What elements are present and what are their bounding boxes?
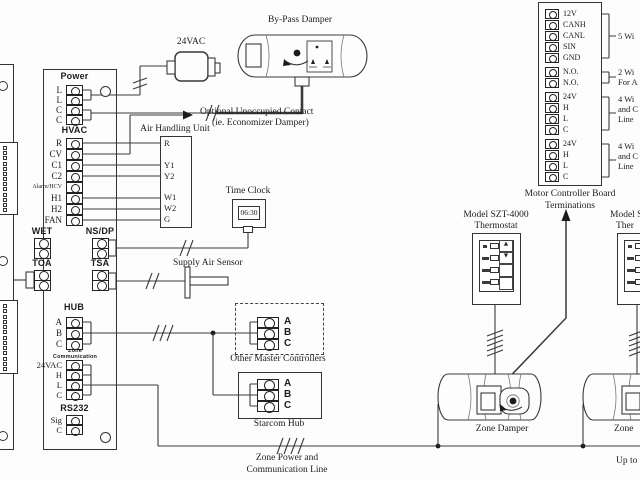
terminal-zone_comm-2	[66, 380, 83, 390]
thermostat1-cell4	[499, 277, 513, 290]
bypass-damper-label: By-Pass Damper	[250, 15, 350, 26]
supply-air-sensor-label: Supply Air Sensor	[173, 258, 243, 269]
terminal-hvac-1	[66, 149, 83, 160]
thermostat2-glyph4	[627, 281, 635, 284]
edge-connector-pin	[3, 177, 7, 181]
terminal-label-zone_comm-0: 24VAC	[12, 360, 62, 370]
edge-connector-pin	[3, 172, 7, 176]
terminal-other_masters-2	[257, 339, 279, 350]
thermostat2-body: ▲ ▼	[617, 233, 640, 305]
terminal-power-2	[66, 105, 83, 115]
terminal-other_masters-1	[257, 328, 279, 339]
starcom-label: Starcom Hub	[229, 419, 329, 430]
mcb-terminal-g0-1-dot	[549, 22, 557, 30]
thermostat1-tab4	[490, 279, 499, 285]
edge-connector-pin	[3, 357, 7, 361]
terminal-block4-1-dot	[39, 281, 49, 291]
terminal-rs232-0	[66, 415, 83, 425]
edge-connector-pin	[3, 187, 7, 191]
terminal-label-zone_comm-2: L	[12, 380, 62, 390]
terminal-label-starcom-2: C	[284, 401, 324, 411]
ahu-terminal-4: W2	[164, 203, 204, 213]
terminal-hub-2	[66, 339, 83, 350]
edge-connector-pin	[3, 193, 7, 197]
terminal-hub-0-dot	[71, 319, 80, 328]
hub-title: HUB	[54, 302, 94, 312]
mcb-terminal-g3-0	[545, 139, 559, 149]
terminal-zone_comm-1	[66, 370, 83, 380]
bypass-damper-stem	[295, 77, 309, 86]
mcb-terminal-g2-2-dot	[549, 116, 557, 124]
terminal-hvac-0-dot	[71, 140, 80, 149]
thermostat2-glyph1	[628, 245, 632, 248]
sensor-probe-stem	[190, 277, 228, 285]
thermostat2-glyph2	[627, 257, 634, 260]
terminal-block4-1	[34, 280, 51, 291]
terminal-label-hub-1: B	[12, 328, 62, 338]
terminal-hvac-1-dot	[71, 151, 80, 160]
time-clock-time: 06:30	[239, 208, 259, 217]
terminal-label-hvac-0: R	[12, 138, 62, 148]
ahu-label: Air Handling Unit	[130, 124, 220, 135]
edge-connector-pin	[3, 325, 7, 329]
mcb-terminal-g1-0-dot	[549, 69, 557, 77]
mcb-terminal-label-g3-2: L	[563, 161, 603, 171]
transformer-right-lug2	[215, 63, 220, 73]
mcb-terminal-g2-0-dot	[549, 94, 557, 102]
tick-marks-hub-wire	[153, 325, 173, 341]
terminal-block3-1	[92, 248, 109, 259]
terminal-label-power-0: L	[12, 85, 62, 95]
arrowhead-optional-contact	[183, 111, 193, 120]
time-clock-display: 06:30	[238, 206, 260, 220]
edge-connector-pin	[3, 156, 7, 160]
mcb-terminal-label-g0-1: CANH	[563, 20, 603, 30]
mcb-terminal-g2-3-dot	[549, 127, 557, 135]
mcb-note-g3-line2: Line	[618, 161, 640, 171]
bracket-mcb-group1	[601, 14, 616, 58]
terminal-label-starcom-1: B	[284, 390, 324, 400]
terminal-block3-1-dot	[97, 249, 107, 259]
mcb-terminal-g2-1-dot	[549, 105, 557, 113]
mcb-note-g2-line1: and C	[618, 104, 640, 114]
mcb-terminal-label-g1-1: N.O.	[563, 78, 603, 88]
edge-connector-pin	[3, 320, 7, 324]
mcb-note-g2-line2: Line	[618, 114, 640, 124]
terminal-label-zone_comm-1: H	[12, 370, 62, 380]
terminal-power-1	[66, 95, 83, 105]
edge-connector-pin	[3, 346, 7, 350]
thermostat1-glyph1	[483, 245, 487, 248]
edge-connector-pin	[3, 336, 7, 340]
edge-connector-pin	[3, 208, 7, 212]
time-clock-box: 06:30	[232, 199, 266, 228]
mcb-terminal-label-g2-2: L	[563, 114, 603, 124]
ahu-terminal-3: W1	[164, 192, 204, 202]
optional-contact-line1: Optional Unoccupied Contact	[200, 107, 313, 118]
mcb-terminal-g0-2-dot	[549, 33, 557, 41]
terminal-hub-0	[66, 317, 83, 328]
toa-tab	[26, 272, 34, 288]
zone-damper1-label: Zone Damper	[452, 424, 552, 435]
edge-connector-pin	[3, 304, 7, 308]
mount-hole-top	[100, 86, 111, 97]
mcb-terminal-label-g1-0: N.O.	[563, 67, 603, 77]
terminal-hvac-5-dot	[71, 195, 80, 204]
terminal-zone_comm-3	[66, 390, 83, 400]
terminal-label-hvac-2: C1	[12, 160, 62, 170]
terminal-starcom-1	[257, 390, 279, 401]
thermostat1-glyph2	[482, 257, 489, 260]
mcb-terminal-g0-2	[545, 31, 559, 41]
terminal-hvac-7-dot	[71, 217, 80, 226]
terminal-starcom-2-dot	[264, 402, 275, 413]
tsa-title: TSA	[80, 258, 120, 268]
edge-connector-pin	[3, 351, 7, 355]
mcb-terminal-g3-1-dot	[549, 152, 557, 160]
edge-connector-pin	[3, 151, 7, 155]
terminal-hub-1-dot	[71, 330, 80, 339]
mcb-terminal-g1-1-dot	[549, 80, 557, 88]
terminal-other_masters-2-dot	[264, 340, 275, 351]
mcb-note-g2-line0: 4 Wi	[618, 94, 640, 104]
thermostat1-tab1	[490, 243, 499, 249]
thermostat1-label2: Thermostat	[446, 221, 546, 232]
edge-connector-pin	[3, 198, 7, 202]
mcb-terminal-g3-0-dot	[549, 141, 557, 149]
thermostat1-down-button: ▼	[499, 252, 513, 264]
tick-marks-thermostat2-wire	[629, 330, 640, 356]
terminal-hvac-4-dot	[71, 184, 80, 193]
mcb-terminal-g0-1	[545, 20, 559, 30]
thermostat2-face: ▲ ▼	[624, 240, 640, 292]
terminal-label-hub-0: A	[12, 317, 62, 327]
mcb-note-g1-line1: For A	[618, 77, 640, 87]
thermostat2-label1: Model S	[610, 210, 640, 221]
wiring-diagram: By-Pass Damper 24VAC Optional Unoccupied…	[0, 0, 640, 480]
ahu-terminal-1: Y1	[164, 160, 204, 170]
terminal-rs232-1-dot	[71, 427, 80, 436]
wire-nsdp-timeclock	[116, 233, 248, 248]
mcb-label1: Motor Controller Board	[515, 189, 625, 200]
transformer-label: 24VAC	[166, 37, 216, 48]
thermostat2-glyph3	[627, 269, 635, 272]
thermostat1-label1: Model SZT-4000	[446, 210, 546, 221]
power-title: Power	[52, 71, 97, 81]
ahu-terminal-0: R	[164, 138, 204, 148]
terminal-label-rs232-0: Sig	[12, 415, 62, 425]
wire-zone-bus	[83, 365, 640, 446]
edge-connector-pin	[3, 362, 7, 366]
mcb-terminal-g3-2-dot	[549, 163, 557, 171]
mcb-terminal-label-g0-3: SIN	[563, 42, 603, 52]
edge-connector-pin	[3, 341, 7, 345]
terminal-block5-1-dot	[97, 281, 107, 291]
terminal-hvac-2-dot	[71, 162, 80, 171]
mount-hole-bottom	[100, 432, 111, 443]
mcb-terminal-g2-2	[545, 114, 559, 124]
thermostat2-tab1	[635, 243, 640, 249]
mcb-terminal-label-g2-1: H	[563, 103, 603, 113]
terminal-other_masters-0	[257, 317, 279, 328]
thermostat1-glyph4	[482, 281, 490, 284]
rs232-title: RS232	[52, 403, 97, 413]
bypass-panel-dot	[316, 46, 319, 49]
transformer-left-lug	[167, 61, 175, 74]
terminal-label-rs232-1: C	[12, 425, 62, 435]
zone-bus-label1: Zone Power and	[237, 453, 337, 464]
time-clock-stem	[243, 226, 253, 233]
terminal-label-power-2: C	[12, 105, 62, 115]
edge-connector-pin	[3, 367, 7, 371]
damper1-shaft	[510, 398, 517, 405]
terminal-label-zone_comm-3: C	[12, 390, 62, 400]
bracket-mcb-group4	[601, 144, 616, 177]
mcb-terminal-label-g2-3: C	[563, 125, 603, 135]
terminal-power-0	[66, 85, 83, 95]
terminal-zone_comm-0	[66, 360, 83, 370]
nsdp-title: NS/DP	[80, 226, 120, 236]
terminal-rs232-1	[66, 425, 83, 435]
mcb-terminal-g1-1	[545, 78, 559, 88]
hvac-title: HVAC	[52, 125, 97, 135]
bracket-mcb-group3	[601, 97, 616, 130]
mcb-note-g3-line0: 4 Wi	[618, 141, 640, 151]
thermostat1-up-button: ▲	[499, 240, 513, 252]
mcb-terminal-g0-3	[545, 42, 559, 52]
zone-damper2-label: Zone	[614, 424, 634, 435]
thermostat1-glyph3	[482, 269, 490, 272]
mcb-terminal-label-g2-0: 24V	[563, 92, 603, 102]
mcb-terminal-g3-1	[545, 150, 559, 160]
transformer-right-lug	[208, 58, 215, 76]
thermostat2-tab2	[635, 255, 640, 261]
terminal-block5-1	[92, 280, 109, 291]
terminal-hvac-3-dot	[71, 173, 80, 182]
terminal-power-3-dot	[71, 117, 80, 126]
thermostat1-body: ▲ ▼	[472, 233, 521, 305]
mcb-terminal-g0-0-dot	[549, 11, 557, 19]
mcb-terminal-g0-4-dot	[549, 55, 557, 63]
terminal-block2-1-dot	[39, 249, 49, 259]
edge-connector-pin	[3, 182, 7, 186]
edge-connector-pin	[3, 330, 7, 334]
terminal-zone_comm-3-dot	[71, 392, 80, 401]
bracket-mcb-group2	[601, 72, 616, 83]
mcb-terminal-g2-0	[545, 92, 559, 102]
terminal-hub-2-dot	[71, 341, 80, 350]
edge-connector-pin	[3, 309, 7, 313]
mcb-terminal-g3-2	[545, 161, 559, 171]
terminal-label-hub-2: C	[12, 339, 62, 349]
terminal-hvac-0	[66, 138, 83, 149]
terminal-label-hvac-6: H2	[12, 204, 62, 214]
mcb-terminal-g3-3	[545, 172, 559, 182]
time-clock-label: Time Clock	[203, 186, 293, 197]
mcb-note-g0-line0: 5 Wi	[618, 31, 640, 41]
terminal-hvac-7	[66, 215, 83, 226]
terminal-label-power-3: C	[12, 115, 62, 125]
up-to-label: Up to	[616, 456, 637, 467]
mcb-terminal-g2-3	[545, 125, 559, 135]
thermostat1-tab2	[490, 255, 499, 261]
mcb-terminal-g0-0	[545, 9, 559, 19]
mcb-terminal-label-g3-0: 24V	[563, 139, 603, 149]
terminal-starcom-0	[257, 379, 279, 390]
terminal-label-hvac-1: CV	[12, 149, 62, 159]
terminal-hvac-6-dot	[71, 206, 80, 215]
terminal-label-starcom-0: A	[284, 379, 324, 389]
mcb-terminal-label-g0-2: CANL	[563, 31, 603, 41]
optional-contact-line2: (ie. Economizer Damper)	[212, 118, 309, 129]
thermostat1-cell3	[499, 264, 513, 277]
bypass-damper-body	[238, 35, 367, 77]
mcb-note-g1-line0: 2 Wi	[618, 67, 640, 77]
bypass-actuator-shaft	[294, 50, 301, 57]
edge-connector-pin	[3, 146, 7, 150]
terminal-power-3	[66, 115, 83, 125]
thermostat1-tab3	[490, 267, 499, 273]
terminal-label-hvac-7: FAN	[12, 215, 62, 225]
terminal-starcom-2	[257, 401, 279, 412]
terminal-hvac-4	[66, 182, 83, 193]
thermostat2-label2: Ther	[616, 221, 634, 232]
thermostat1-face: ▲ ▼	[479, 240, 514, 292]
thermostat2-tab4	[635, 279, 640, 285]
terminal-label-hvac-3: C2	[12, 171, 62, 181]
terminal-block2-1	[34, 248, 51, 259]
terminal-label-other_masters-0: A	[284, 317, 324, 327]
ahu-terminal-5: G	[164, 214, 204, 224]
mcb-terminal-label-g3-1: H	[563, 150, 603, 160]
terminal-hvac-5	[66, 193, 83, 204]
zone-bus-label2: Communication Line	[237, 465, 337, 476]
mcb-terminal-g2-1	[545, 103, 559, 113]
mcb-terminal-g0-4	[545, 53, 559, 63]
mcb-terminal-g0-3-dot	[549, 44, 557, 52]
toa-title: TOA	[24, 258, 60, 268]
terminal-hub-1	[66, 328, 83, 339]
wet-title: WET	[24, 226, 60, 236]
edge-connector-pin	[3, 315, 7, 319]
terminal-label-power-1: L	[12, 95, 62, 105]
terminal-label-other_masters-2: C	[284, 339, 324, 349]
mcb-terminal-label-g0-4: GND	[563, 53, 603, 63]
terminal-label-hvac-4: Alarm/HCV	[12, 182, 62, 192]
terminal-label-hvac-5: H1	[12, 193, 62, 203]
ahu-terminal-2: Y2	[164, 171, 204, 181]
edge-connector-pin	[3, 167, 7, 171]
transformer-body	[175, 52, 208, 81]
edge-connector-pin	[3, 203, 7, 207]
mcb-terminal-label-g0-0: 12V	[563, 9, 603, 19]
mcb-terminal-g3-3-dot	[549, 174, 557, 182]
terminal-label-other_masters-1: B	[284, 328, 324, 338]
terminal-hvac-3	[66, 171, 83, 182]
mcb-terminal-g1-0	[545, 67, 559, 77]
terminal-hvac-6	[66, 204, 83, 215]
sensor-probe-head	[185, 267, 190, 298]
thermostat2-tab3	[635, 267, 640, 273]
other-masters-label: Other Master Controllers	[228, 354, 328, 365]
mcb-terminal-label-g3-3: C	[563, 172, 603, 182]
mcb-note-g3-line1: and C	[618, 151, 640, 161]
terminal-hvac-2	[66, 160, 83, 171]
edge-connector-pin	[3, 162, 7, 166]
